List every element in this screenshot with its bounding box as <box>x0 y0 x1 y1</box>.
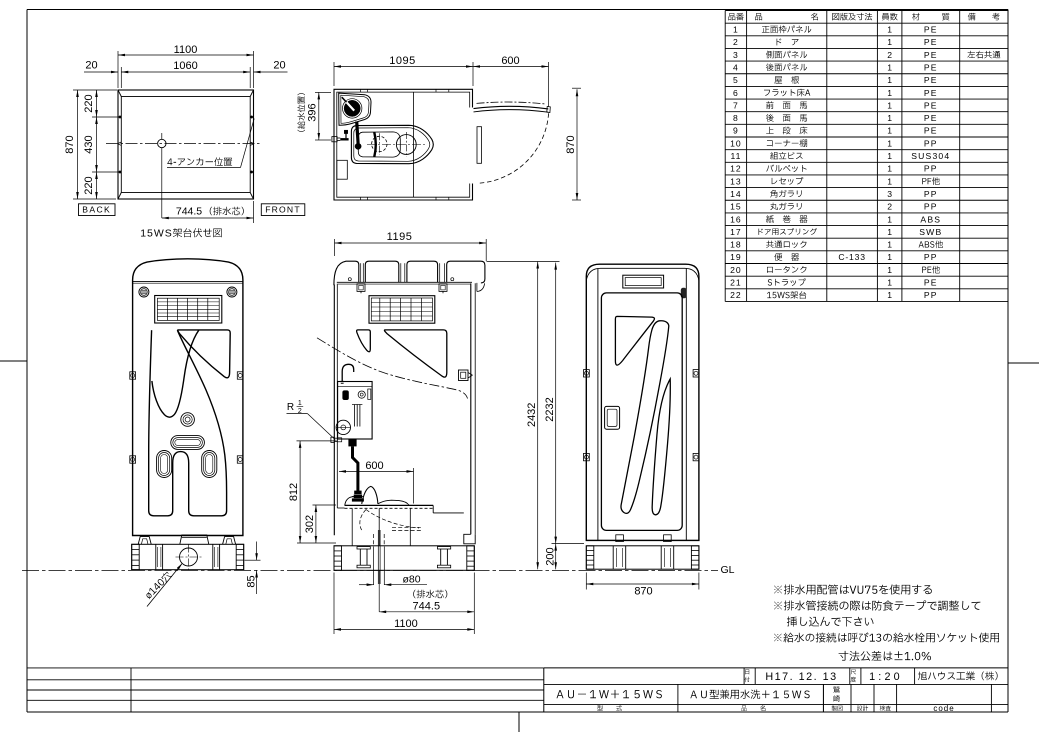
svg-text:85: 85 <box>246 575 258 587</box>
svg-text:1095: 1095 <box>389 55 415 67</box>
svg-text:744.5: 744.5 <box>176 206 202 218</box>
svg-text:PE: PE <box>924 88 938 98</box>
svg-text:3: 3 <box>733 50 739 60</box>
svg-text:13: 13 <box>730 176 742 186</box>
svg-text:PE: PE <box>924 113 938 123</box>
svg-text:PP: PP <box>924 202 938 212</box>
svg-text:1: 1 <box>887 63 892 73</box>
svg-text:PE: PE <box>924 37 938 47</box>
svg-text:PE: PE <box>924 50 938 60</box>
svg-text:PE: PE <box>924 126 938 136</box>
svg-text:PP: PP <box>924 189 938 199</box>
svg-text:19: 19 <box>730 252 742 262</box>
svg-text:H17. 12. 13: H17. 12. 13 <box>765 671 837 683</box>
svg-text:20: 20 <box>273 59 285 71</box>
svg-text:8: 8 <box>733 113 739 123</box>
svg-text:BACK: BACK <box>82 205 111 215</box>
svg-text:302: 302 <box>304 515 316 533</box>
svg-text:1: 1 <box>887 176 892 186</box>
svg-text:12: 12 <box>730 164 742 174</box>
svg-text:PP: PP <box>924 290 938 300</box>
svg-text:14: 14 <box>730 189 742 199</box>
svg-text:1: 1 <box>887 252 892 262</box>
svg-text:870: 870 <box>64 135 76 153</box>
svg-text:1: 1 <box>887 88 892 98</box>
svg-text:7: 7 <box>733 100 739 110</box>
svg-text:2432: 2432 <box>526 403 538 427</box>
svg-text:6: 6 <box>733 88 739 98</box>
svg-text:PE: PE <box>924 278 938 288</box>
svg-text:PE: PE <box>924 75 938 85</box>
svg-text:C-133: C-133 <box>838 252 865 262</box>
svg-text:9: 9 <box>733 126 739 136</box>
svg-text:200: 200 <box>544 547 556 565</box>
svg-text:18: 18 <box>730 240 742 250</box>
svg-text:1: 1 <box>887 290 892 300</box>
svg-text:1: 1 <box>887 126 892 136</box>
svg-text:ABS: ABS <box>920 214 941 224</box>
svg-text:870: 870 <box>634 585 652 597</box>
svg-text:1100: 1100 <box>394 618 418 630</box>
svg-text:PE: PE <box>924 63 938 73</box>
svg-text:2: 2 <box>887 50 892 60</box>
svg-text:PE: PE <box>924 100 938 110</box>
svg-text:code: code <box>933 704 954 713</box>
svg-text:1: 1 <box>887 37 892 47</box>
svg-text:1: 1 <box>887 75 892 85</box>
svg-text:2232: 2232 <box>544 397 556 421</box>
svg-text:11: 11 <box>730 151 741 161</box>
svg-text:1: 1 <box>887 214 892 224</box>
svg-text:1: 1 <box>887 151 892 161</box>
svg-text:1: 1 <box>887 138 892 148</box>
svg-text:PP: PP <box>924 252 938 262</box>
svg-text:744.5: 744.5 <box>413 601 441 613</box>
svg-text:1: 1 <box>887 278 892 288</box>
svg-text:220: 220 <box>83 94 95 112</box>
svg-text:SWB: SWB <box>919 227 942 237</box>
svg-text:1: 1 <box>887 240 892 250</box>
svg-text:1: 1 <box>887 265 892 275</box>
svg-text:1: 1 <box>887 164 892 174</box>
svg-text:220: 220 <box>83 176 95 194</box>
svg-text:R: R <box>287 402 294 413</box>
svg-text:2: 2 <box>733 37 739 47</box>
svg-text:16: 16 <box>730 214 742 224</box>
svg-text:1100: 1100 <box>174 44 198 56</box>
svg-text:1060: 1060 <box>173 60 197 72</box>
svg-text:600: 600 <box>501 55 519 67</box>
svg-text:1:20: 1:20 <box>869 671 903 683</box>
svg-text:15WS: 15WS <box>140 228 173 240</box>
svg-text:GL: GL <box>720 564 734 576</box>
svg-text:PP: PP <box>924 164 938 174</box>
svg-text:1: 1 <box>887 227 892 237</box>
svg-text:20: 20 <box>85 59 97 71</box>
svg-text:15: 15 <box>730 202 742 212</box>
svg-text:2: 2 <box>887 202 892 212</box>
svg-text:396: 396 <box>306 103 318 121</box>
svg-text:FRONT: FRONT <box>265 205 301 215</box>
svg-text:22: 22 <box>730 290 742 300</box>
svg-text:1: 1 <box>887 100 892 110</box>
svg-text:1: 1 <box>887 25 892 35</box>
svg-text:1: 1 <box>298 400 302 407</box>
svg-text:1195: 1195 <box>387 231 413 243</box>
svg-text:812: 812 <box>288 483 300 501</box>
svg-text:600: 600 <box>365 460 383 472</box>
svg-text:PE: PE <box>924 25 938 35</box>
svg-text:10: 10 <box>730 138 742 148</box>
svg-text:20: 20 <box>730 265 742 275</box>
svg-text:3: 3 <box>887 189 892 199</box>
svg-text:1: 1 <box>887 113 892 123</box>
svg-text:PP: PP <box>924 138 938 148</box>
svg-text:17: 17 <box>730 227 742 237</box>
svg-text:5: 5 <box>733 75 739 85</box>
svg-text:4: 4 <box>733 63 739 73</box>
svg-text:1: 1 <box>733 25 739 35</box>
svg-text:ø80: ø80 <box>402 574 420 586</box>
svg-text:SUS304: SUS304 <box>911 151 950 161</box>
svg-text:870: 870 <box>565 135 577 153</box>
svg-text:430: 430 <box>83 135 95 153</box>
svg-text:21: 21 <box>730 278 742 288</box>
